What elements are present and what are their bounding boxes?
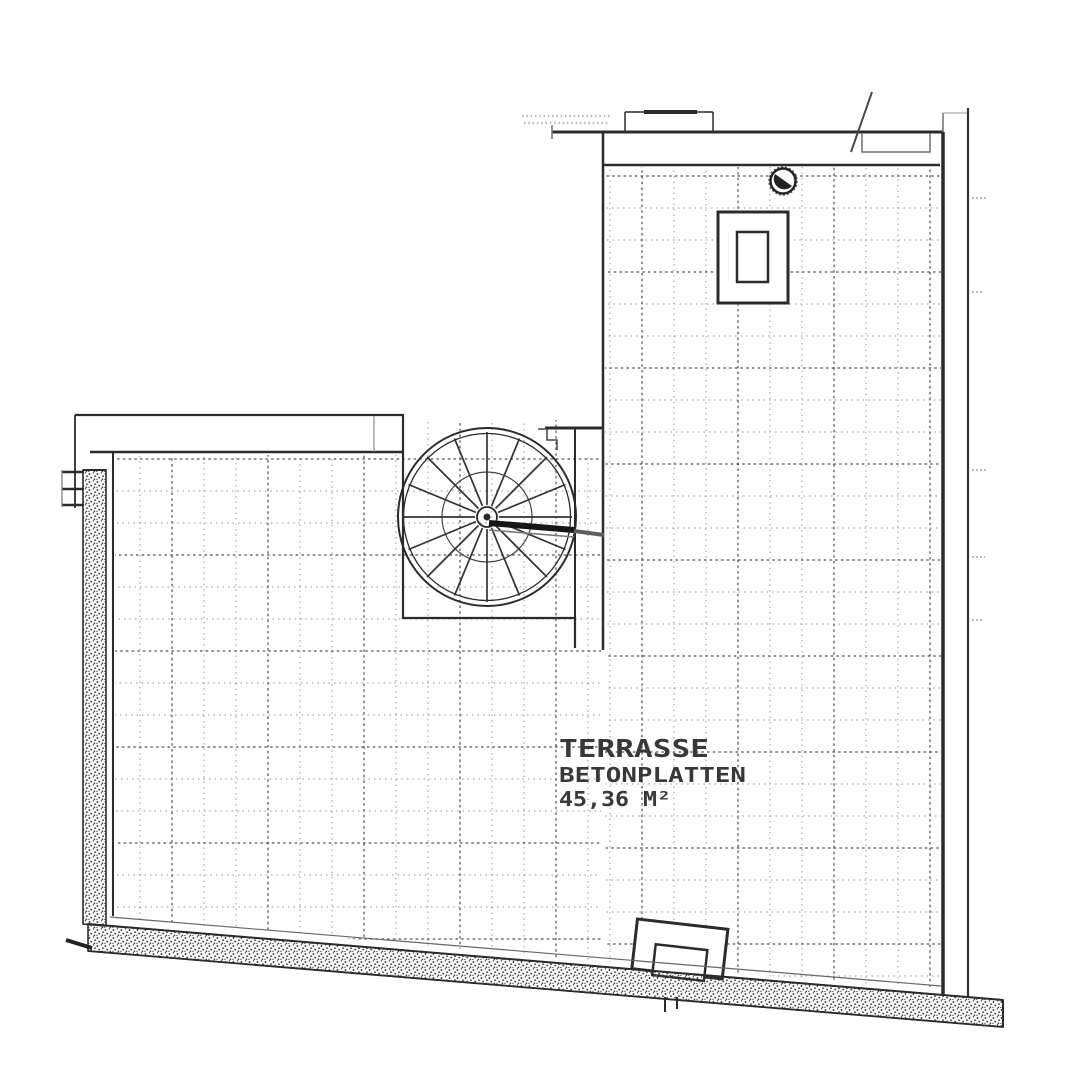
left-exterior-wall (83, 470, 106, 926)
stair-tread-edge (496, 457, 548, 509)
exterior-wall-hatch (66, 470, 1003, 1027)
stair-tread-edge (427, 457, 479, 509)
room-name-label: TERRASSE (559, 734, 709, 763)
wall-niche-outline (862, 133, 930, 152)
stair-tread-edge (455, 528, 483, 595)
floor-drain-icon (769, 167, 797, 195)
tile-grid-left-terrace (88, 412, 612, 1000)
stair-bay-and-left-parapet (62, 415, 603, 916)
stair-tread-edge (492, 528, 520, 595)
floor-plan-canvas: TERRASSE BETONPLATTEN 45,36 M² (0, 0, 1068, 1080)
stair-entry-bar (489, 523, 574, 530)
floor-plan-page: TERRASSE BETONPLATTEN 45,36 M² (0, 0, 1068, 1080)
stair-tread-edge (498, 485, 565, 513)
stair-tread-edge (492, 439, 520, 506)
roof-hatch-upper (718, 212, 788, 303)
area-label: 45,36 M² (559, 787, 671, 811)
roof-curb-outline (625, 112, 713, 132)
stair-tread-edge (455, 439, 483, 506)
stair-landing-bar (574, 531, 604, 535)
stair-tread-edge (427, 526, 479, 578)
scan-noise-marks (522, 116, 612, 123)
stair-tread-edge (409, 522, 476, 550)
stair-tread-edge (409, 485, 476, 513)
wall-tie-stubs (62, 470, 84, 507)
material-label: BETONPLATTEN (559, 763, 746, 787)
stair-newel-center (484, 514, 491, 521)
right-boundary (943, 108, 988, 997)
boundary-tick-marks (972, 198, 988, 620)
terrace-label-block: TERRASSE BETONPLATTEN 45,36 M² (559, 734, 746, 811)
roof-hatch-upper-inner (737, 232, 768, 282)
spiral-staircase (398, 428, 604, 606)
